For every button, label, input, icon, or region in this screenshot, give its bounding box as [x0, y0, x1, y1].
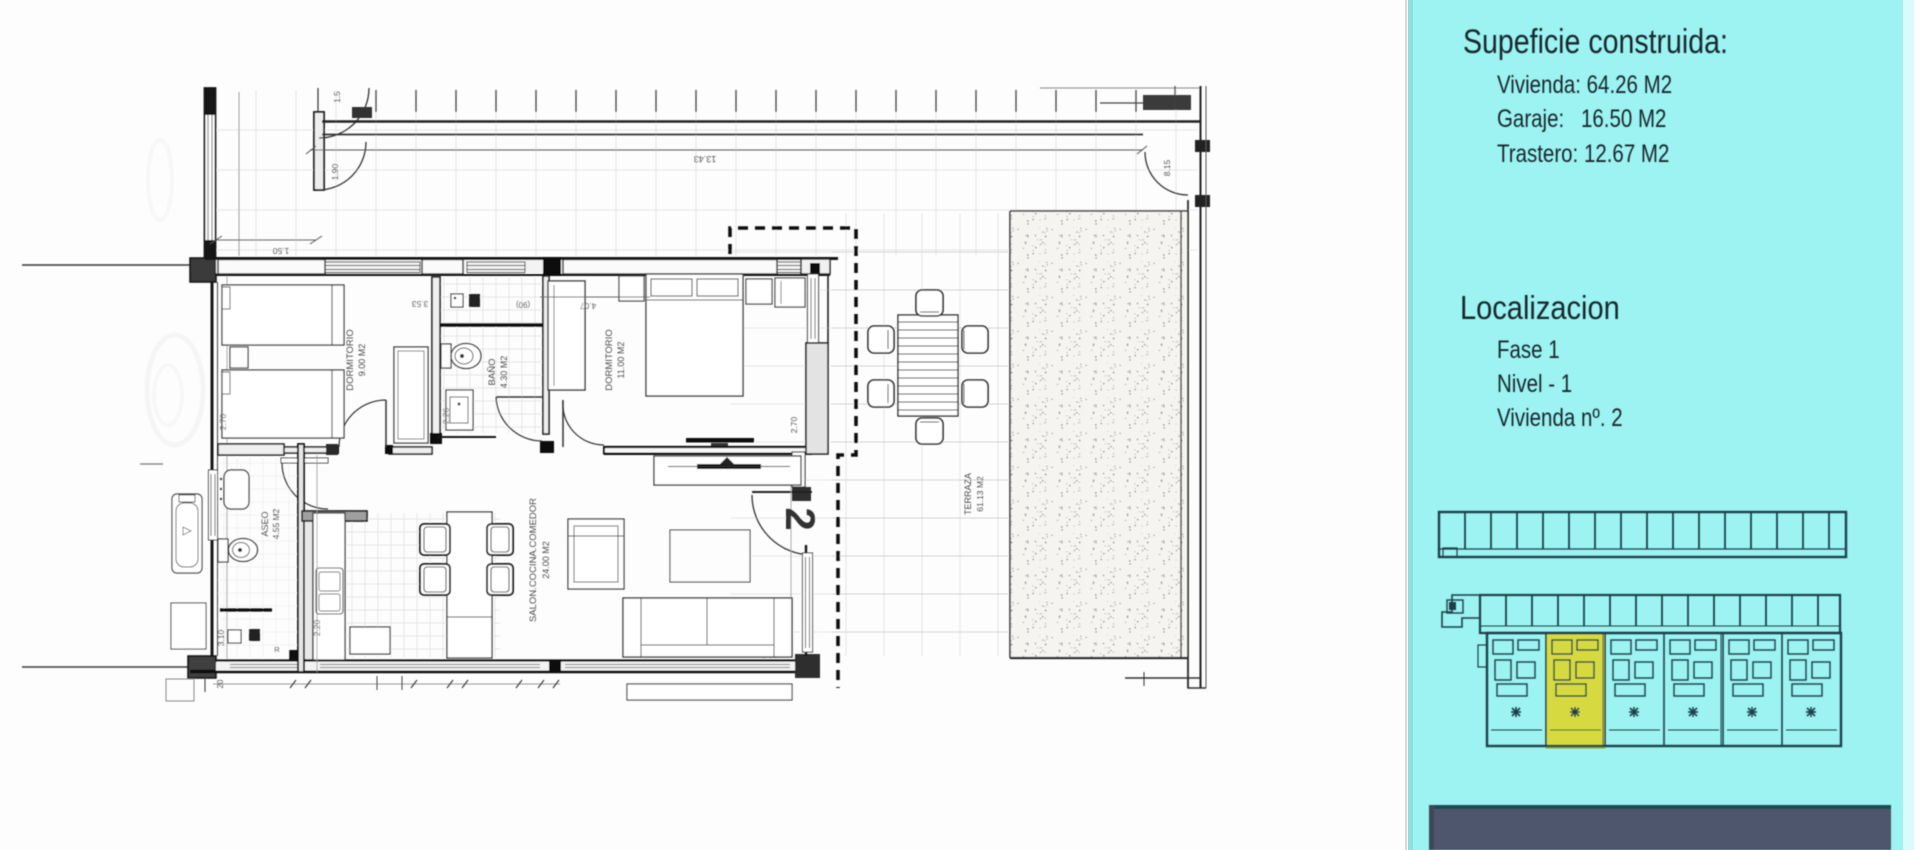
- svg-text:DORMITORIO: DORMITORIO: [604, 329, 615, 391]
- svg-text:3.10: 3.10: [216, 629, 226, 646]
- svg-text:(90): (90): [516, 300, 531, 309]
- svg-text:2.26: 2.26: [441, 407, 451, 424]
- svg-text:Nivel - 1: Nivel - 1: [1497, 369, 1572, 397]
- svg-text:2.20: 2.20: [312, 619, 322, 636]
- svg-text:SALON.COCINA.COMEDOR: SALON.COCINA.COMEDOR: [528, 498, 539, 622]
- svg-text:Vivienda nº. 2: Vivienda nº. 2: [1497, 403, 1623, 431]
- svg-text:ASEO: ASEO: [260, 511, 270, 536]
- svg-text:BAÑO: BAÑO: [487, 359, 498, 386]
- svg-text:1.5: 1.5: [332, 91, 342, 103]
- svg-text:2: 2: [777, 507, 824, 530]
- svg-text:11.00 M2: 11.00 M2: [616, 342, 626, 379]
- svg-text:4.55 M2: 4.55 M2: [271, 508, 281, 539]
- svg-text:Trastero: 12.67 M2: Trastero: 12.67 M2: [1497, 139, 1669, 167]
- svg-text:2.70: 2.70: [218, 413, 228, 430]
- svg-text:R: R: [274, 645, 280, 654]
- svg-text:TERRAZA: TERRAZA: [963, 473, 973, 515]
- svg-text:2.70: 2.70: [789, 416, 799, 433]
- svg-text:1.90: 1.90: [330, 163, 340, 180]
- svg-text:4.30 M2: 4.30 M2: [499, 356, 509, 389]
- svg-text:Localizacion: Localizacion: [1460, 289, 1620, 326]
- svg-text:20: 20: [216, 679, 225, 688]
- svg-text:Garaje:: Garaje:: [1497, 104, 1564, 132]
- svg-text:4.07: 4.07: [579, 301, 596, 311]
- svg-text:Supeficie construida:: Supeficie construida:: [1463, 23, 1728, 61]
- svg-text:3.53: 3.53: [411, 299, 428, 309]
- svg-text:Fase 1: Fase 1: [1497, 335, 1560, 363]
- svg-text:DORMITORIO: DORMITORIO: [345, 329, 356, 391]
- svg-text:Vivienda: 64.26 M2: Vivienda: 64.26 M2: [1497, 70, 1672, 98]
- svg-text:16.50 M2: 16.50 M2: [1581, 104, 1666, 132]
- svg-text:24.00 M2: 24.00 M2: [541, 541, 551, 579]
- svg-text:9.00 M2: 9.00 M2: [357, 344, 367, 377]
- svg-text:1.50: 1.50: [272, 246, 289, 256]
- svg-text:13.43: 13.43: [694, 154, 717, 164]
- svg-text:61.13 M2: 61.13 M2: [975, 476, 985, 512]
- svg-text:8.15: 8.15: [1162, 159, 1172, 176]
